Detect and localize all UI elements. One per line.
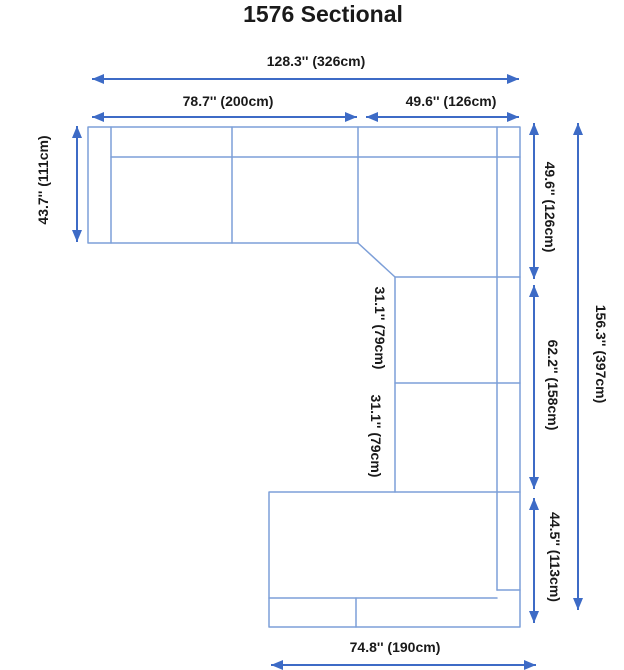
label-right-upper-depth: 49.6'' (126cm) <box>542 162 558 253</box>
label-lower-armless-seat: 31.1'' (79cm) <box>368 395 384 478</box>
label-total-depth: 156.3'' (397cm) <box>593 305 609 404</box>
label-chaise-depth: 44.5'' (113cm) <box>547 512 563 602</box>
label-left-section-width: 78.7'' (200cm) <box>183 93 274 109</box>
label-overall-width: 128.3'' (326cm) <box>267 53 366 69</box>
sofa-outer-boundary <box>88 127 520 627</box>
dimension-labels: 128.3'' (326cm) 78.7'' (200cm) 49.6'' (1… <box>35 53 609 655</box>
sofa-outline <box>88 127 520 627</box>
label-corner-width: 49.6'' (126cm) <box>406 93 497 109</box>
label-right-middle-depth: 62.2'' (158cm) <box>545 340 561 431</box>
label-chaise-width: 74.8'' (190cm) <box>350 639 441 655</box>
dimension-arrows <box>77 79 578 665</box>
label-upper-armless-seat: 31.1'' (79cm) <box>372 287 388 370</box>
sectional-dimension-diagram: 1576 Sectional <box>0 0 624 670</box>
diagram-canvas: 1576 Sectional <box>0 0 624 670</box>
page-title: 1576 Sectional <box>243 1 403 27</box>
label-left-depth: 43.7'' (111cm) <box>35 135 51 224</box>
